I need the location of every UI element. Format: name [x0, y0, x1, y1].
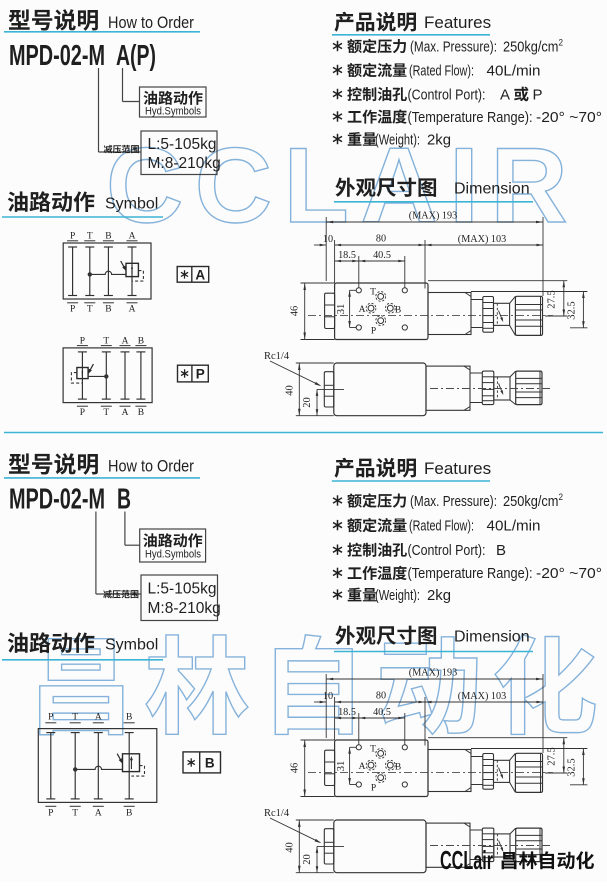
svg-text:250kg/cm2: 250kg/cm2	[503, 37, 563, 55]
svg-text:CCLair: CCLair	[440, 845, 493, 875]
svg-text:T: T	[87, 232, 93, 242]
svg-text:-20° ~70°: -20° ~70°	[536, 109, 602, 126]
svg-text:M:8-210kg: M:8-210kg	[148, 155, 221, 172]
svg-text:(Max. Pressure):: (Max. Pressure):	[410, 38, 497, 55]
svg-text:Features: Features	[424, 13, 491, 32]
svg-text:Features: Features	[424, 459, 491, 478]
svg-text:M:8-210kg: M:8-210kg	[148, 600, 221, 617]
svg-text:40L/min: 40L/min	[487, 62, 541, 79]
svg-text:How to Order: How to Order	[108, 458, 194, 476]
svg-text:2kg: 2kg	[427, 587, 451, 604]
svg-text:A: A	[95, 809, 102, 819]
svg-text:A: A	[122, 337, 129, 347]
svg-text:Dimension: Dimension	[454, 629, 530, 646]
svg-text:T: T	[72, 713, 78, 723]
svg-text:B: B	[126, 713, 132, 723]
svg-text:2kg: 2kg	[427, 131, 451, 148]
svg-text:B: B	[126, 809, 132, 819]
svg-text:P: P	[80, 337, 85, 347]
svg-text:MPD-02-M: MPD-02-M	[9, 40, 105, 72]
svg-text:T: T	[72, 809, 78, 819]
svg-text:Symbol: Symbol	[105, 196, 158, 213]
svg-text:B: B	[117, 484, 131, 516]
svg-text:250kg/cm2: 250kg/cm2	[503, 492, 563, 510]
svg-text:B: B	[138, 408, 144, 418]
svg-text:B: B	[105, 305, 111, 315]
svg-text:Hyd.Symbols: Hyd.Symbols	[145, 106, 201, 118]
svg-text:Dimension: Dimension	[454, 181, 530, 198]
svg-text:P: P	[196, 366, 205, 381]
svg-text:P: P	[70, 305, 75, 315]
svg-text:A: A	[195, 267, 205, 282]
svg-text:A: A	[129, 305, 136, 315]
svg-text:T: T	[87, 305, 93, 315]
svg-text:T: T	[103, 408, 109, 418]
svg-text:MPD-02-M: MPD-02-M	[9, 484, 105, 516]
svg-text:(Weight):: (Weight):	[375, 131, 420, 148]
svg-text:Hyd.Symbols: Hyd.Symbols	[145, 549, 201, 561]
svg-text:L:5-105kg: L:5-105kg	[148, 136, 217, 153]
svg-text:B: B	[205, 756, 215, 771]
svg-text:(Weight):: (Weight):	[375, 587, 420, 604]
svg-text:A: A	[500, 86, 510, 103]
svg-text:Symbol: Symbol	[105, 637, 158, 654]
svg-text:B: B	[138, 337, 144, 347]
svg-text:40L/min: 40L/min	[487, 517, 541, 534]
svg-text:P: P	[80, 408, 85, 418]
svg-text:(Max. Pressure):: (Max. Pressure):	[410, 493, 497, 510]
svg-text:B: B	[496, 542, 506, 559]
svg-text:(Temperature Range):: (Temperature Range):	[408, 109, 533, 126]
svg-text:(Rated Flow):: (Rated Flow):	[409, 517, 474, 534]
svg-text:P: P	[533, 86, 543, 103]
svg-text:L:5-105kg: L:5-105kg	[148, 581, 217, 598]
svg-text:B: B	[105, 232, 111, 242]
svg-text:A(P): A(P)	[116, 40, 156, 72]
svg-text:A: A	[122, 408, 129, 418]
svg-text:How to Order: How to Order	[108, 14, 194, 32]
svg-text:(Control Port):: (Control Port):	[408, 86, 486, 103]
svg-text:A: A	[129, 232, 136, 242]
svg-text:P: P	[70, 232, 75, 242]
svg-text:T: T	[103, 337, 109, 347]
svg-text:P: P	[48, 809, 53, 819]
svg-text:P: P	[48, 713, 53, 723]
svg-text:(Temperature Range):: (Temperature Range):	[408, 565, 533, 582]
svg-text:A: A	[95, 713, 102, 723]
svg-text:(Rated Flow):: (Rated Flow):	[409, 62, 474, 79]
svg-text:(Control Port):: (Control Port):	[408, 542, 486, 559]
svg-text:-20° ~70°: -20° ~70°	[536, 565, 602, 582]
